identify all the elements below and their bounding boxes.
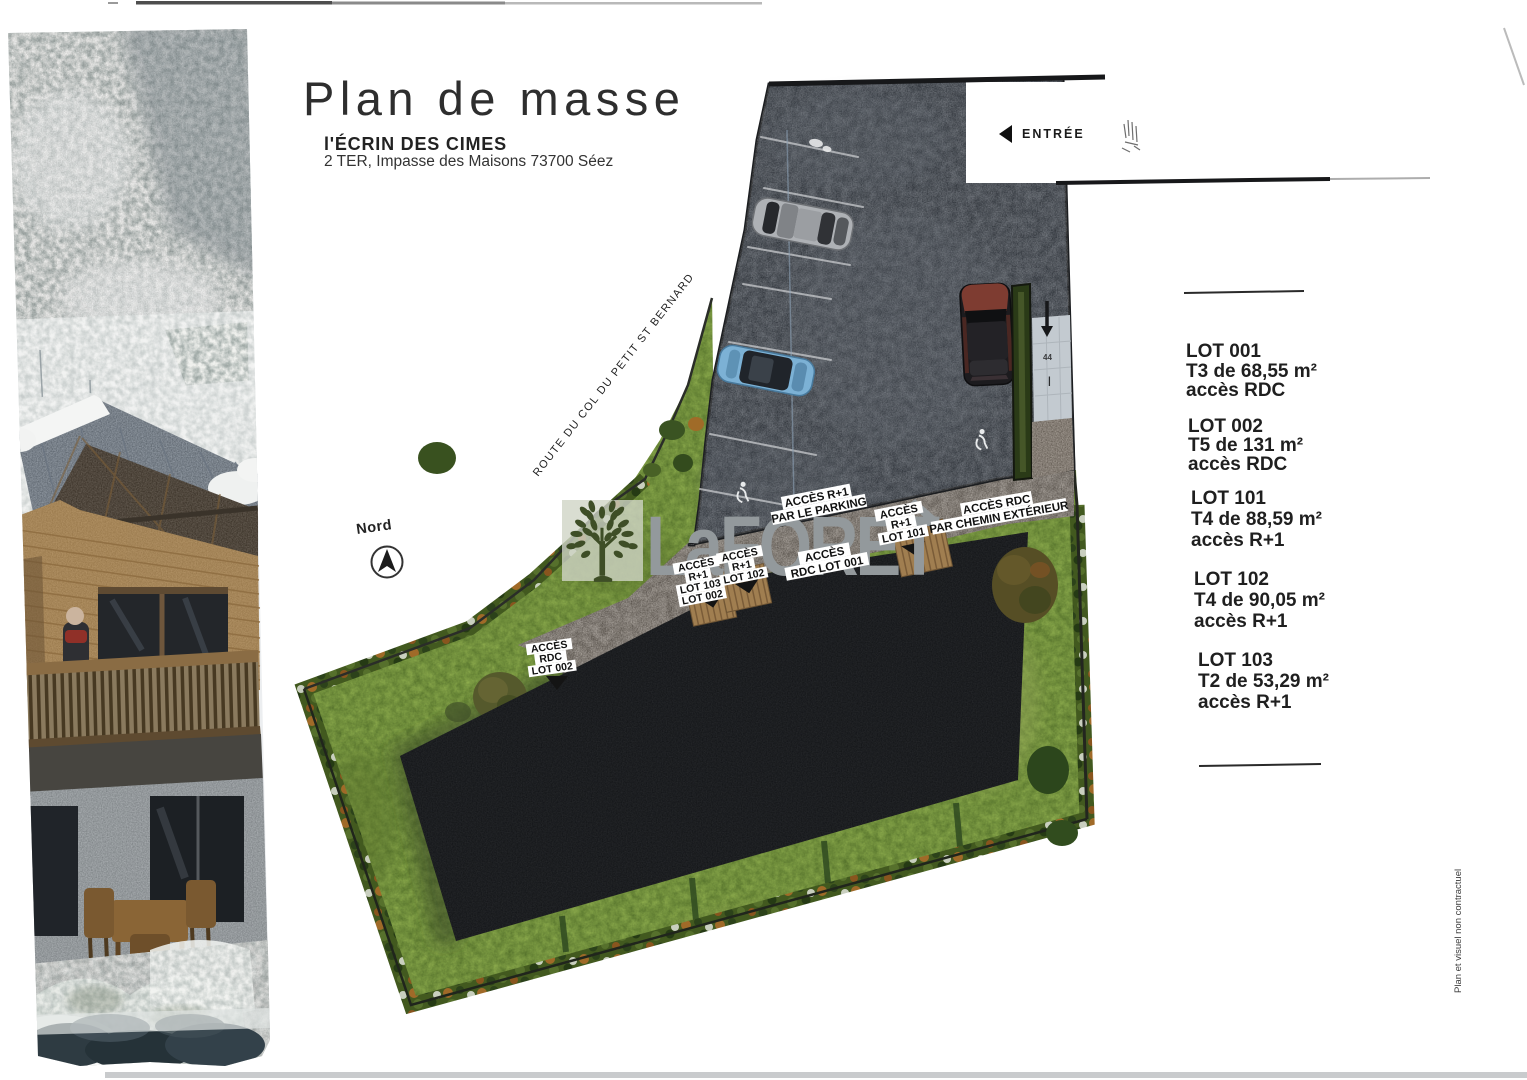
svg-text:LOT 002: LOT 002 [1188, 416, 1263, 437]
svg-text:T2 de 53,29 m²: T2 de 53,29 m² [1198, 671, 1329, 692]
svg-text:accès R+1: accès R+1 [1194, 611, 1288, 632]
svg-text:Plan de masse: Plan de masse [303, 72, 685, 125]
svg-text:T4 de 90,05 m²: T4 de 90,05 m² [1194, 590, 1325, 611]
svg-text:accès RDC: accès RDC [1188, 454, 1288, 475]
svg-text:44: 44 [1043, 353, 1052, 362]
svg-text:LOT 103: LOT 103 [1198, 650, 1273, 671]
svg-text:accès R+1: accès R+1 [1191, 530, 1285, 551]
svg-text:2 TER, Impasse des Maisons 737: 2 TER, Impasse des Maisons 73700 Séez [324, 153, 613, 170]
svg-text:Plan et visuel non contractuel: Plan et visuel non contractuel [1453, 869, 1464, 993]
svg-text:|: | [1048, 376, 1051, 387]
svg-text:ENTRÉE: ENTRÉE [1022, 126, 1085, 141]
svg-text:accès R+1: accès R+1 [1198, 692, 1292, 713]
svg-text:LOT 101: LOT 101 [1191, 488, 1266, 509]
svg-text:accès RDC: accès RDC [1186, 380, 1286, 401]
svg-text:l'ÉCRIN DES CIMES: l'ÉCRIN DES CIMES [324, 133, 507, 154]
svg-text:T4 de 88,59 m²: T4 de 88,59 m² [1191, 509, 1322, 530]
svg-text:LOT 001: LOT 001 [1186, 341, 1261, 362]
svg-text:LOT 102: LOT 102 [1194, 569, 1269, 590]
svg-text:T3 de 68,55 m²: T3 de 68,55 m² [1186, 361, 1317, 382]
svg-text:T5 de 131 m²: T5 de 131 m² [1188, 435, 1303, 456]
